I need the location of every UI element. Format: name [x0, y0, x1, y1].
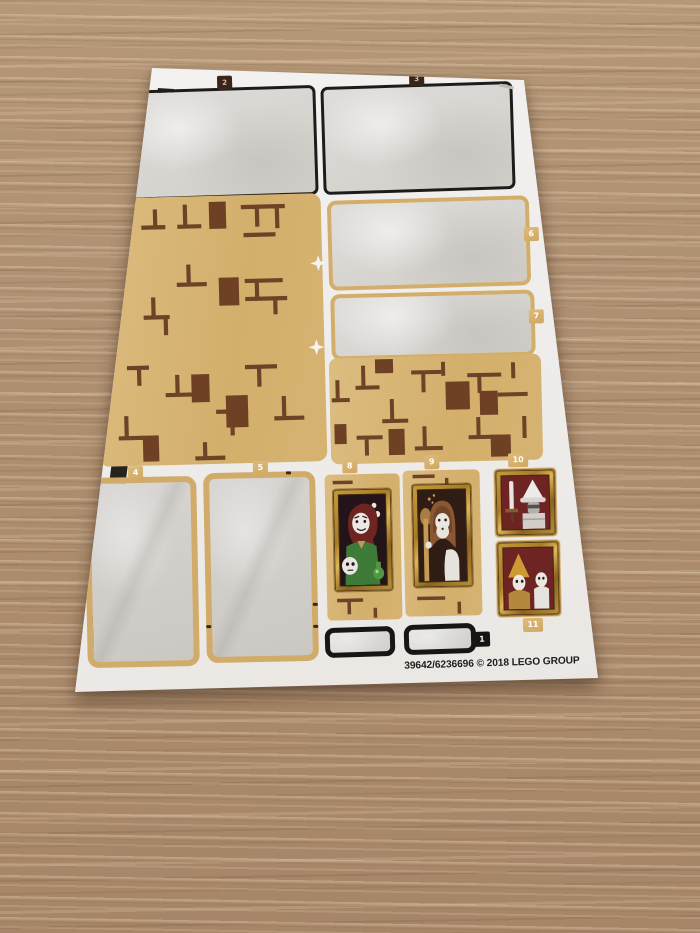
- sticker-5-number: 5: [258, 464, 264, 472]
- sticker-8-number: 8: [347, 462, 353, 470]
- sticker-9-number-tab: 9: [424, 455, 439, 469]
- sticker-4-number: 4: [133, 469, 139, 477]
- sticker-8-portrait-redhaired-witch: 8: [324, 473, 402, 621]
- sticker-3-number-tab: 3: [409, 72, 424, 86]
- sticker-8-number-tab: 8: [342, 459, 357, 473]
- gold-portrait-frame: [333, 488, 393, 591]
- gold-portrait-frame: [497, 541, 560, 615]
- die-cut-mark: [313, 625, 318, 628]
- sparkle-cutout-icon: [87, 323, 103, 339]
- sticker-5-panel: 5: [203, 471, 319, 663]
- sticker-6-panel: 6: [327, 195, 531, 291]
- portrait-art-knight: [501, 476, 549, 530]
- sticker-sheet-shadow: 2 3: [0, 0, 700, 933]
- sticker-6-number-tab: 6: [524, 227, 539, 241]
- sticker-2-panel: 2: [116, 85, 318, 201]
- sticker-1-plate-left: [325, 626, 396, 658]
- sticker-11-number-tab: 11: [523, 618, 543, 632]
- sticker-4-number-tab: 4: [128, 466, 143, 480]
- sticker-6-number: 6: [528, 230, 534, 238]
- sparkle-cutout-icon: [308, 339, 324, 355]
- portrait-art-witch: [339, 495, 387, 586]
- gold-portrait-frame: [412, 483, 473, 587]
- sticker-4-panel: 4: [84, 476, 200, 668]
- die-cut-mark: [313, 603, 318, 606]
- sticker-9-portrait-hooded-monk: 9: [402, 469, 482, 617]
- sticker-9-number: 9: [429, 458, 435, 466]
- sticker-10-number-tab: 10: [508, 453, 528, 467]
- sticker-7-panel: 7: [330, 290, 536, 361]
- tan-brick-wall-sticker-right: [329, 354, 543, 465]
- die-cut-mark: [286, 471, 291, 474]
- sticker-10-portrait-knight-with-sword: 10: [493, 467, 557, 537]
- sticker-1-plate-right: 1: [404, 623, 477, 655]
- sticker-3-panel: 3: [320, 81, 515, 195]
- sticker-5-number-tab: 5: [253, 461, 268, 475]
- brick-mortar-marks: [329, 354, 543, 465]
- die-cut-mark: [206, 625, 211, 628]
- gold-portrait-frame: [495, 469, 555, 535]
- sticker-11-number: 11: [527, 621, 538, 629]
- sticker-10-number: 10: [512, 456, 523, 464]
- copyright-text: 39642/6236696 © 2018 LEGO GROUP: [392, 655, 592, 672]
- sticker-11-portrait-two-figures: 11: [495, 539, 562, 617]
- portrait-art-monk: [418, 490, 467, 582]
- sticker-1-number: 1: [479, 635, 485, 643]
- sticker-3-number: 3: [414, 75, 419, 82]
- sticker-7-number: 7: [533, 312, 539, 320]
- tan-brick-wall-sticker-left: [93, 193, 328, 467]
- sticker-7-number-tab: 7: [529, 309, 544, 323]
- sticker-sheet: 2 3: [0, 0, 700, 933]
- sticker-2-number-tab: 2: [217, 76, 232, 90]
- sparkle-cutout-icon: [92, 417, 108, 433]
- portrait-art-two-figures: [503, 547, 553, 609]
- brick-mortar-marks: [93, 193, 328, 467]
- sticker-1-number-tab: 1: [474, 631, 490, 646]
- sparkle-cutout-icon: [310, 255, 326, 271]
- photo-of-lego-sticker-sheet-on-wood-table: 2 3: [0, 0, 700, 933]
- sticker-2-number: 2: [222, 79, 227, 86]
